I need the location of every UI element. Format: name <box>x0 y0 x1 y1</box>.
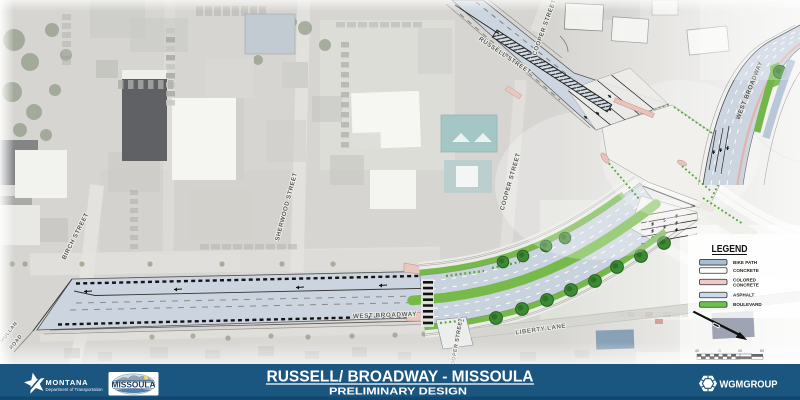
svg-text:BIKE PATH: BIKE PATH <box>733 260 758 265</box>
svg-text:WGMGROUP: WGMGROUP <box>720 379 778 391</box>
svg-text:ASPHALT: ASPHALT <box>733 293 755 298</box>
svg-text:MONTANA: MONTANA <box>46 378 89 387</box>
svg-text:LEGEND: LEGEND <box>712 243 748 255</box>
svg-text:BOULEVARD: BOULEVARD <box>733 302 762 307</box>
svg-text:Department of Transportation: Department of Transportation <box>46 387 104 392</box>
svg-text:PRELIMINARY DESIGN: PRELIMINARY DESIGN <box>329 386 467 398</box>
svg-text:MISSOULA: MISSOULA <box>112 381 156 390</box>
svg-text:CONCRETE: CONCRETE <box>733 268 759 273</box>
svg-text:CONCRETE: CONCRETE <box>733 283 759 288</box>
svg-text:RUSSELL/ BROADWAY - MISSOULA: RUSSELL/ BROADWAY - MISSOULA <box>267 369 534 386</box>
